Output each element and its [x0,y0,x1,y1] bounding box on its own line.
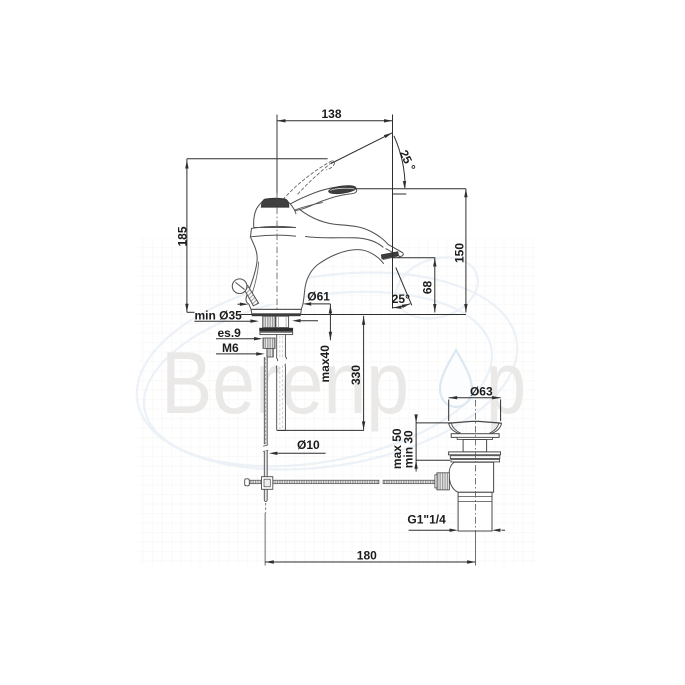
svg-text:max40: max40 [318,345,332,383]
svg-text:150: 150 [453,243,467,263]
svg-text:Ø10: Ø10 [297,438,320,452]
svg-text:Ø63: Ø63 [470,384,493,398]
svg-text:min 30: min 30 [401,430,415,468]
svg-text:185: 185 [175,226,189,246]
svg-text:Ø61: Ø61 [307,289,330,303]
svg-text:G1"1/4: G1"1/4 [407,513,446,527]
svg-text:68: 68 [421,281,435,295]
svg-text:M6: M6 [222,341,239,355]
svg-text:p: p [486,333,526,432]
svg-text:25 °: 25 ° [396,148,418,174]
svg-text:es.9: es.9 [218,326,242,340]
svg-text:138: 138 [321,107,341,121]
svg-text:180: 180 [357,549,377,563]
svg-text:25°: 25° [392,292,410,306]
svg-text:330: 330 [349,365,363,385]
svg-text:min Ø35: min Ø35 [195,308,243,322]
